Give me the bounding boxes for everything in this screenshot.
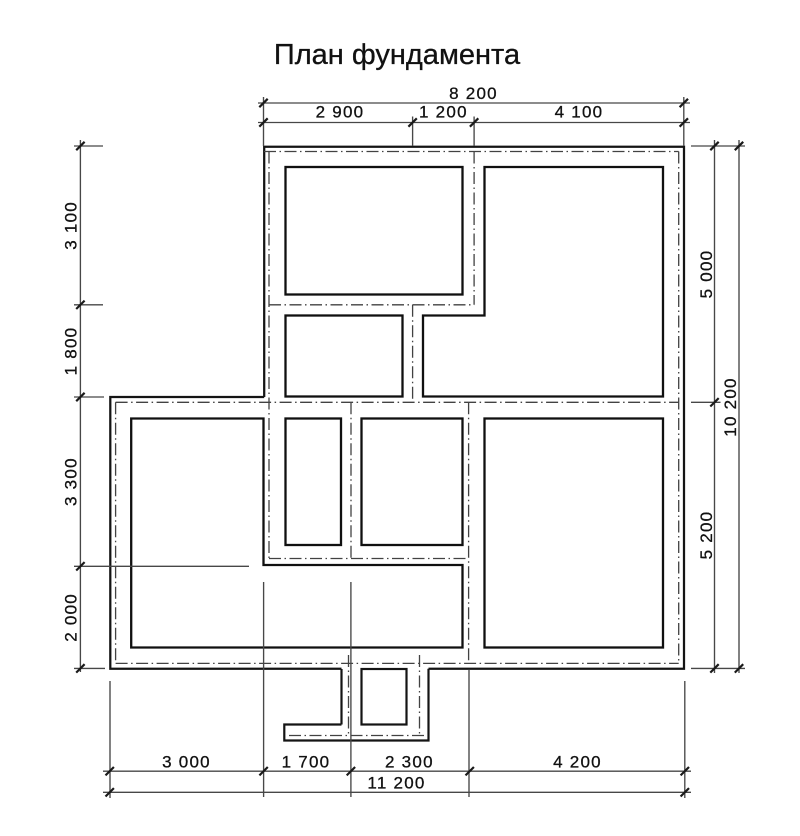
svg-text:2 900: 2 900 [316, 103, 365, 122]
svg-text:1 800: 1 800 [62, 327, 81, 376]
svg-text:4 100: 4 100 [555, 103, 604, 122]
svg-text:2 300: 2 300 [385, 753, 434, 772]
svg-text:4 200: 4 200 [553, 753, 602, 772]
svg-text:3 300: 3 300 [62, 457, 81, 506]
svg-text:8 200: 8 200 [449, 84, 498, 103]
svg-text:1 700: 1 700 [282, 753, 331, 772]
svg-text:3 000: 3 000 [162, 753, 211, 772]
svg-text:3 100: 3 100 [62, 201, 81, 250]
svg-text:1 200: 1 200 [419, 103, 468, 122]
svg-text:5 000: 5 000 [697, 250, 716, 299]
svg-text:2 000: 2 000 [62, 593, 81, 642]
svg-text:10 200: 10 200 [721, 377, 740, 437]
svg-text:5 200: 5 200 [697, 511, 716, 560]
svg-text:План фундамента: План фундамента [274, 39, 521, 71]
svg-text:11 200: 11 200 [367, 774, 425, 793]
